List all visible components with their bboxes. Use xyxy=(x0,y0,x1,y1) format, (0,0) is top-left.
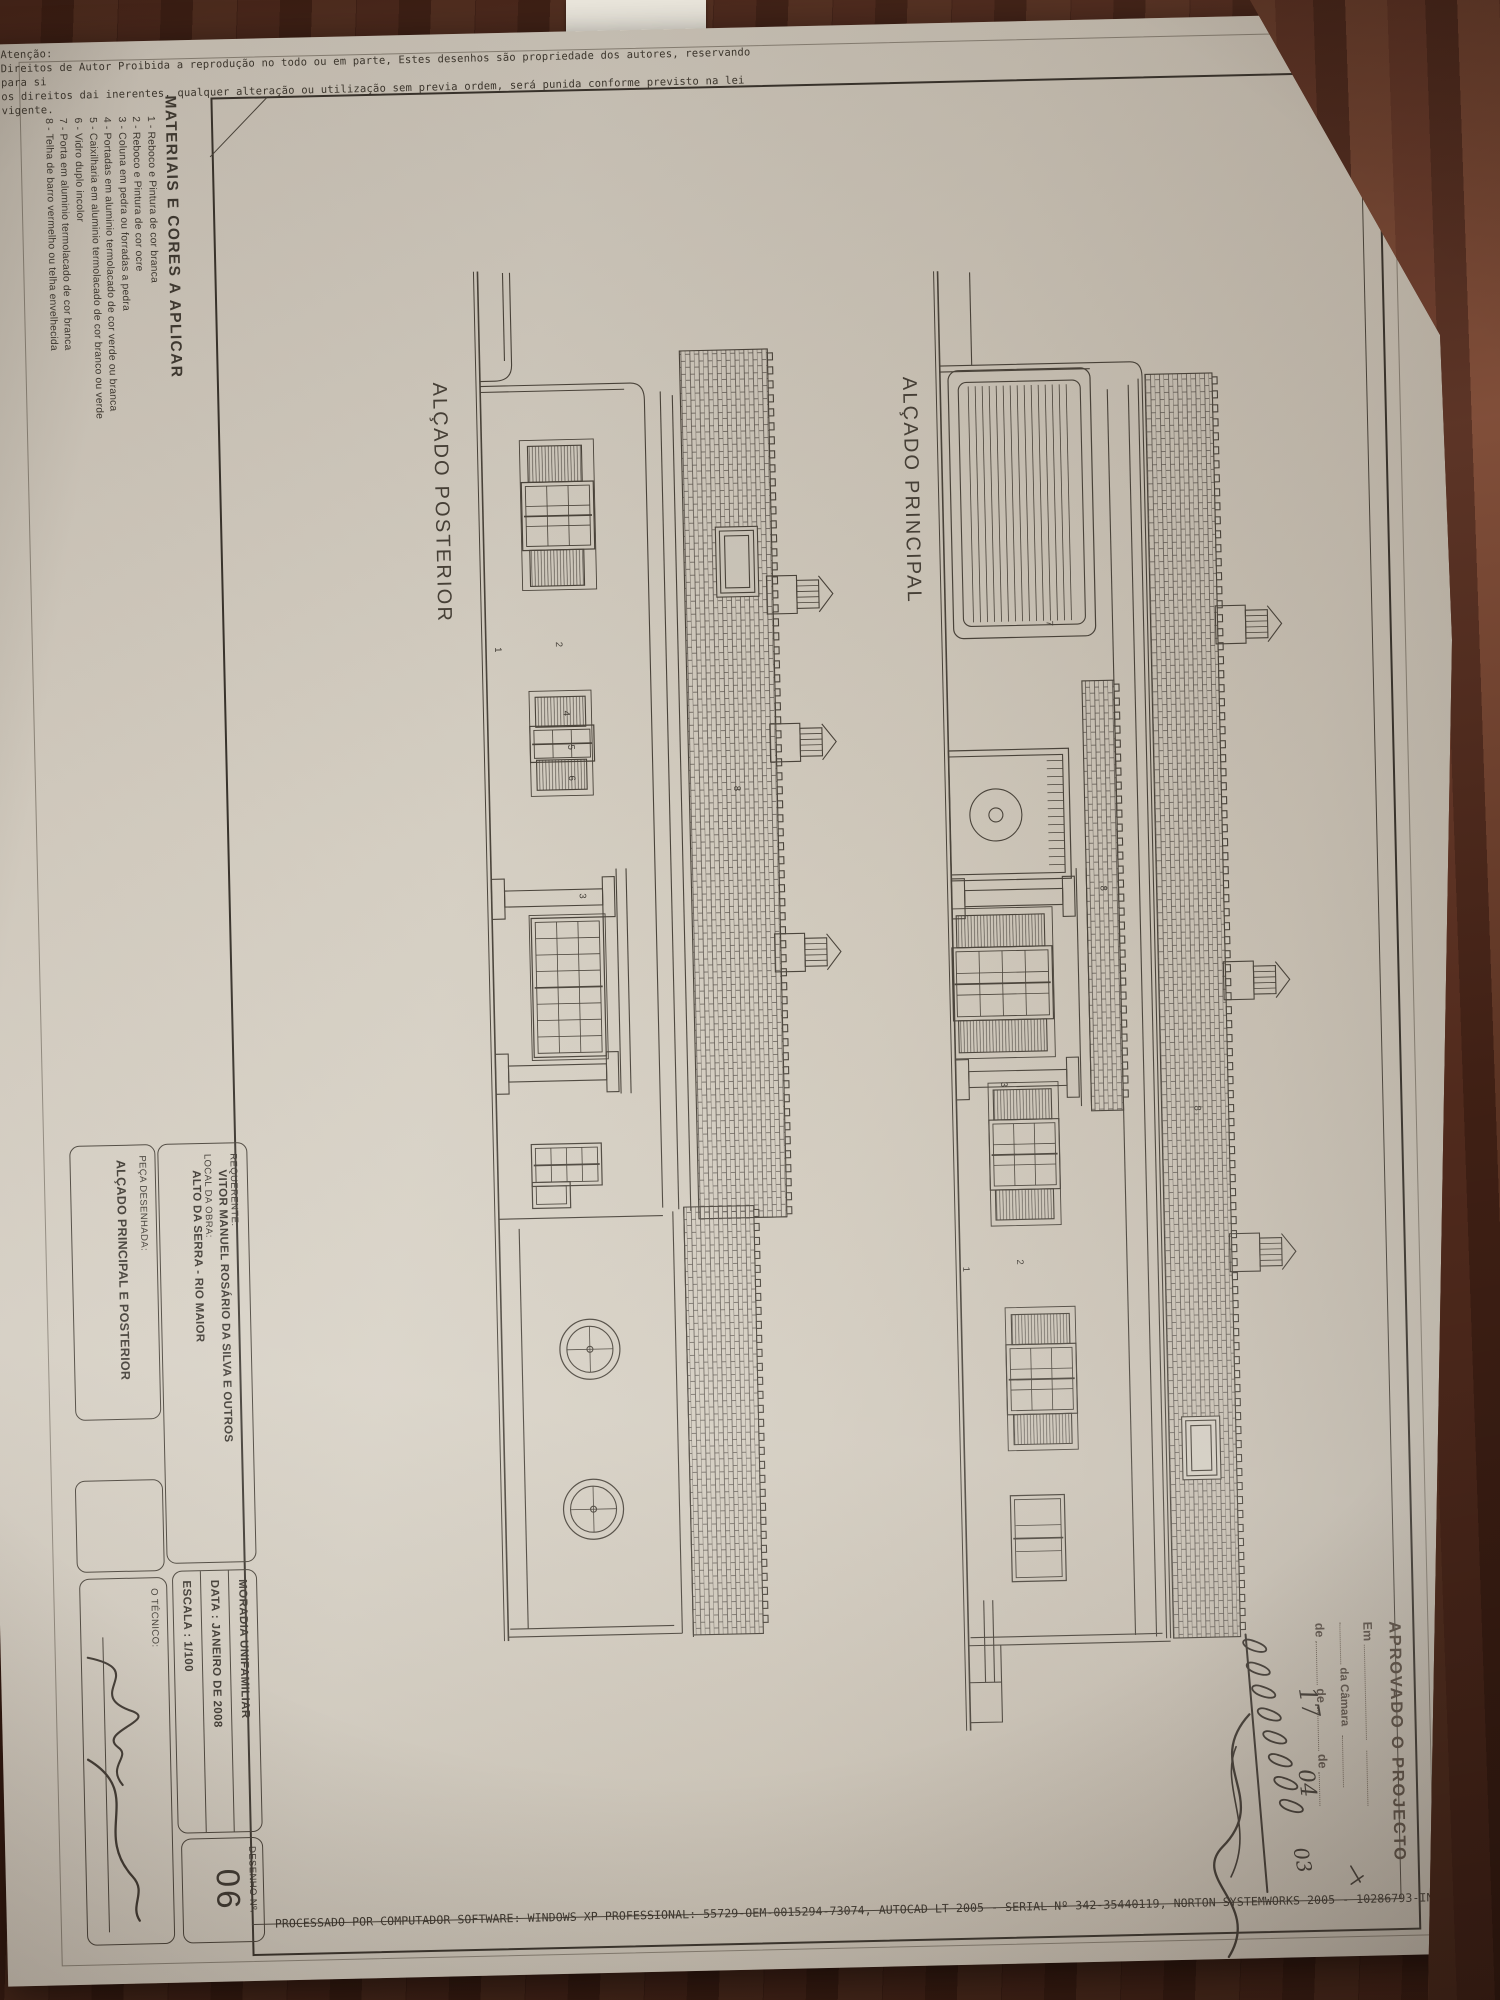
stamp-de: de xyxy=(1312,1623,1326,1638)
stamp-dotted-line xyxy=(1319,1772,1332,1806)
materials-items: 1 - Reboco e Pintura de cor branca2 - Re… xyxy=(40,96,173,803)
material-key-label: 6 xyxy=(566,775,577,781)
material-key-label: 3 xyxy=(998,1082,1009,1088)
posterior-elevation-drawing: 1234568 xyxy=(467,264,858,1642)
elev-posterior-svg: 1234568 xyxy=(467,264,858,1642)
material-key-label: 1 xyxy=(960,1267,971,1273)
stamp-dotted-line xyxy=(1339,1622,1352,1664)
stamp-de: de xyxy=(1315,1754,1329,1769)
stamp-em: Em xyxy=(1360,1622,1374,1642)
stamp-dotted-line xyxy=(1366,1751,1379,1806)
stamp-dotted-line xyxy=(1364,1644,1378,1739)
principal-elevation-drawing: 123788 xyxy=(928,263,1321,1731)
titleblock-empty-box xyxy=(75,1479,165,1573)
approval-stamp: APROVADO O PROJECTO Em da Câmara de de d… xyxy=(1238,1621,1410,1915)
data-row: DATA : JANEIRO DE 2008 xyxy=(201,1571,235,1833)
material-key-label: 1 xyxy=(492,647,503,653)
stamp-dotted-line xyxy=(1342,1735,1355,1787)
elev-principal-svg: 123788 xyxy=(928,263,1321,1731)
handwritten-year: 03 xyxy=(1288,1845,1317,1875)
stamp-dotted-line xyxy=(1316,1641,1329,1685)
material-key-label: 7 xyxy=(1044,621,1055,627)
titleblock-project-box: MORADIA UNIFAMILIAR DATA : JANEIRO DE 20… xyxy=(172,1569,263,1834)
stamp-camara: da Câmara xyxy=(1337,1667,1350,1726)
stamp-line-em: Em xyxy=(1360,1622,1382,1912)
material-key-label: 2 xyxy=(1014,1259,1025,1265)
material-key-label: 8 xyxy=(731,786,742,792)
escala-row: ESCALA : 1/100 xyxy=(173,1571,207,1833)
material-key-label: 8 xyxy=(1192,1105,1203,1111)
material-key-label: 4 xyxy=(560,711,571,717)
peca-label: PEÇA DESENHADA: xyxy=(136,1155,153,1408)
titleblock-peca-box: PEÇA DESENHADA: ALÇADO PRINCIPAL E POSTE… xyxy=(69,1144,161,1421)
signature-line xyxy=(102,1637,110,1932)
titleblock-tecnico-box: O TÉCNICO: xyxy=(79,1577,175,1946)
desenho-number: 06 xyxy=(208,1846,248,1934)
material-key-label: 2 xyxy=(553,642,564,648)
materials-list: MATERIAIS E CORES A APLICAR 1 - Reboco e… xyxy=(40,95,195,803)
material-key-label: 5 xyxy=(565,744,576,750)
handwritten-month: 04 xyxy=(1292,1768,1320,1799)
handwritten-day: 17 xyxy=(1293,1685,1326,1720)
peca-value: ALÇADO PRINCIPAL E POSTERIOR xyxy=(113,1156,133,1409)
titleblock-requerente-box: REQUERENTE: VITOR MANUEL ROSÁRIO DA SILV… xyxy=(157,1142,257,1564)
stamp-line-camara: da Câmara xyxy=(1336,1622,1358,1912)
titleblock-desenho-box: DESENHO Nº. 06 xyxy=(181,1837,265,1944)
tecnico-label: O TÉCNICO: xyxy=(148,1588,167,1933)
drawing-sheet: Atenção: Direitos de Autor Proibida a re… xyxy=(0,11,1496,1986)
material-key-label: 8 xyxy=(1098,885,1109,891)
material-key-label: 3 xyxy=(577,893,588,899)
desenho-label: DESENHO Nº. xyxy=(246,1846,259,1933)
